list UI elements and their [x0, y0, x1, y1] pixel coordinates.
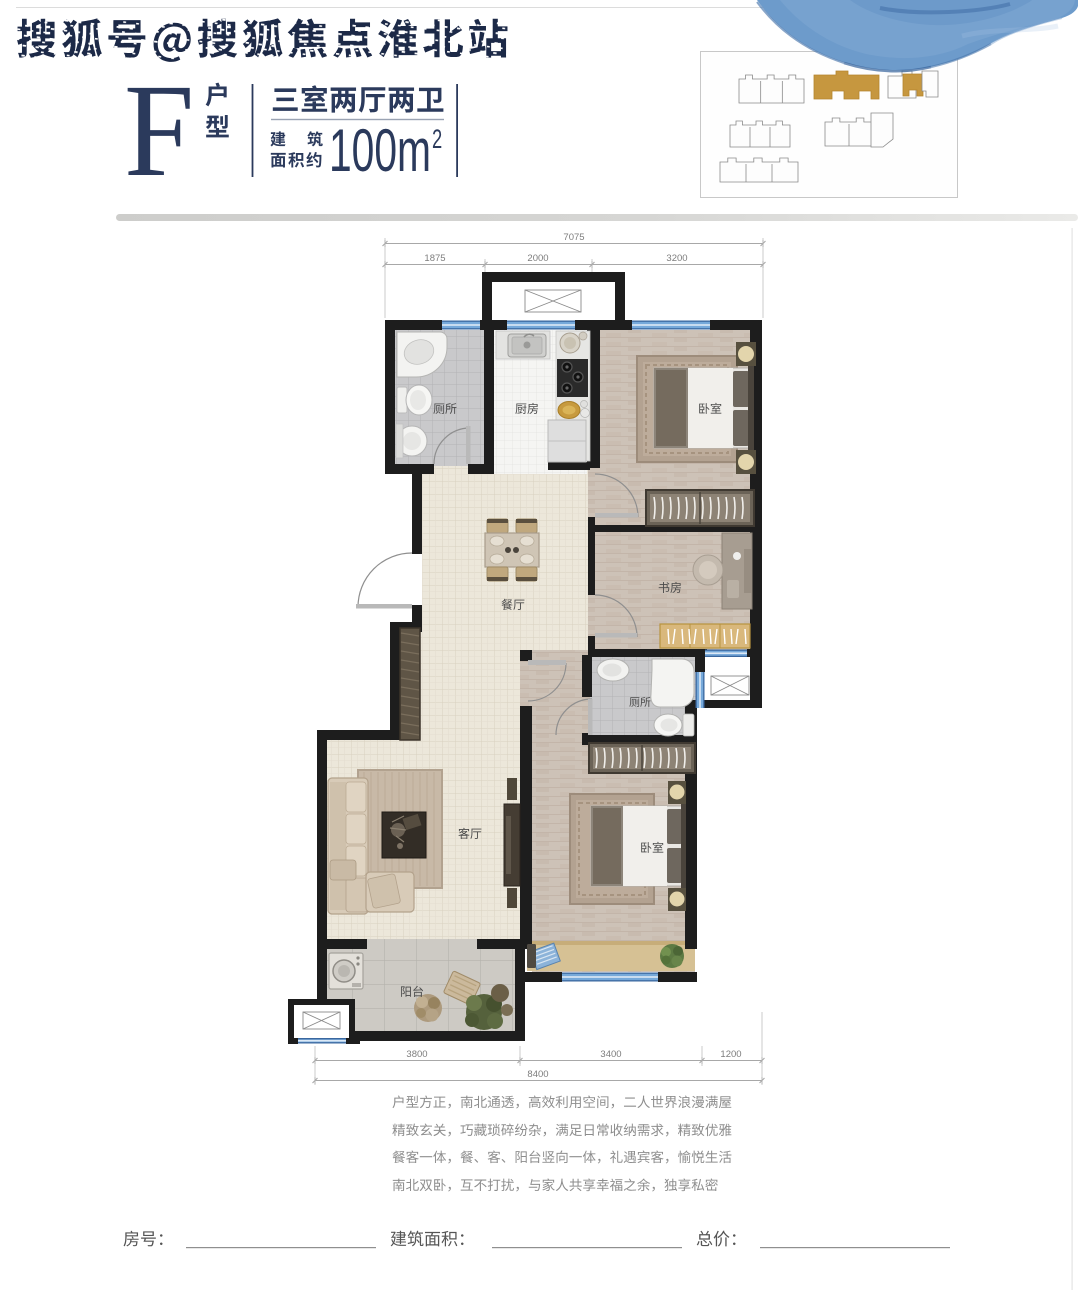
svg-text:7075: 7075	[563, 232, 584, 243]
svg-text:2000: 2000	[527, 253, 548, 264]
svg-text:2: 2	[432, 123, 442, 153]
svg-text:8400: 8400	[527, 1069, 548, 1080]
svg-text:1875: 1875	[424, 253, 445, 264]
svg-text:3200: 3200	[666, 253, 687, 264]
svg-text:1200: 1200	[720, 1049, 741, 1060]
svg-text:F: F	[124, 57, 194, 205]
svg-text:100m: 100m	[329, 117, 431, 184]
svg-text:3400: 3400	[600, 1049, 621, 1060]
svg-text:3800: 3800	[406, 1049, 427, 1060]
